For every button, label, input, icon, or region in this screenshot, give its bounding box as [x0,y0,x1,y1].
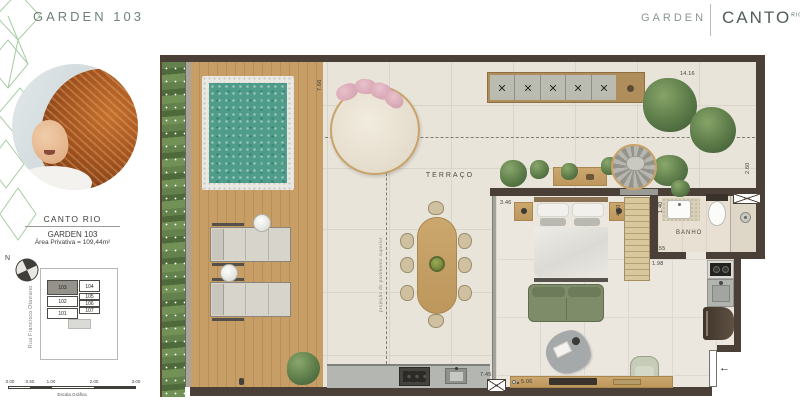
bath-sink [667,200,691,219]
brand-logo: CANTORIO [722,8,800,28]
shower-head-icon [740,212,751,223]
brand-logo-text: CANTO [722,8,791,27]
wall-bath-bottom-a [650,252,686,259]
gourmet-sink [445,368,467,384]
sun-lounger [210,227,291,262]
bed-pillow [537,203,569,217]
scale-seg [94,387,135,388]
indoor-floor-living [496,259,734,387]
projection-note: projeção do pavimento superior [378,232,383,312]
sofa-back [532,287,565,297]
bath-sink-faucet [678,203,681,206]
table-centerpiece [429,256,445,272]
wall-kitchen-right [734,259,741,347]
header-divider [710,4,711,36]
wall-right [756,55,765,259]
scale-caption: Escala Gráfica [8,392,136,397]
dining-chair [458,257,472,273]
coffee-table-cup [571,336,580,345]
scale-tick: 0.50 [26,379,35,384]
keyplan-unit-101: 101 [47,308,78,319]
toilet-bowl [708,201,726,226]
bed-foot-bench [534,278,608,282]
bench-cushion [592,75,616,100]
terrace-bench [487,72,645,103]
keyplan-unit-104: 104 [79,280,100,292]
kitchen-faucet [719,281,723,285]
scale-tick: 3.00 [132,379,141,384]
toilet-tank [706,194,728,201]
bed-duvet [534,227,608,277]
dining-chair [458,233,472,249]
entry-door [709,350,717,387]
keyplan-unit-107: 107 [79,307,100,314]
sink-basin [450,372,463,381]
dim-bedroom-right: 4.70 [616,198,622,216]
dining-chair [400,257,414,273]
keyplan-unit-102: 102 [47,296,78,307]
burner [713,266,720,273]
wall-bottom [190,387,712,396]
bathroom-label: BANHO [676,230,702,236]
keyplan-core [68,319,91,329]
bed-pillow [572,203,604,217]
dining-chair [428,201,444,215]
north-label: N [5,255,10,262]
dim-living-height: 7.45 [480,372,492,378]
wall-entry-stub [717,345,741,352]
gourmet-cooktop [399,367,430,386]
photo-smile [44,150,55,155]
terrace-tree [690,107,736,153]
sideboard-tray [613,379,641,385]
sofa-back [568,287,601,297]
dim-kitchen-width: 1.98 [652,261,664,267]
shower-divider [730,196,731,252]
toilet [705,194,729,227]
wall-top [160,55,765,62]
bed-cushion [540,218,566,226]
sliding-door-bedroom [620,189,658,195]
sidebar-area-line: Área Privativa = 109,44m² [10,239,135,246]
dining-chair [400,233,414,249]
outlet-dot [517,382,519,384]
dim-terrace-width: 14.16 [680,71,695,77]
sidebar-unit-title: GARDEN 103 [25,230,120,239]
lounger-seam [268,229,269,260]
deck-faucet [239,378,244,385]
street-label: Rua Francisco Otaviano [28,282,34,348]
terrace-tree [643,78,697,132]
console-decor [586,174,594,180]
glass-facade [492,196,496,387]
kitchen-sink-counter [707,279,734,307]
window-icon [487,379,506,392]
bench-cushion [490,75,515,100]
bath-corner-plant [671,180,690,197]
fridge-handle [706,311,708,336]
deck-side-table [220,264,238,282]
nightstand [514,202,533,221]
entry-arrow: ← [719,362,730,374]
dim-living-width: 5.06 [521,379,533,385]
sun-lounger [210,282,291,317]
pool [209,83,287,183]
dim-bath-width: 1.40 [658,197,664,213]
shower-floor [731,196,756,252]
coffee-table-book [553,341,572,358]
dim-terrace-depth: 2.60 [745,156,751,174]
hanging-chair-pillow [626,156,645,171]
brand-logo-sup: RIO [791,12,800,18]
closet-stairs [624,197,650,281]
keyplan-unit-105: 105 [79,293,100,300]
lounger-frame-bar [212,223,244,226]
nightstand-lamp [521,208,527,214]
kitchen-cooktop [707,260,734,279]
planter-strip [160,62,185,397]
keyplan-unit-103: 103 [47,280,78,295]
kitchen-sink-basin [712,285,730,302]
lifestyle-photo [12,64,138,190]
scale-bar-rule [8,386,136,389]
sofa-seat-seam [566,298,567,320]
dim-bath-depth: 2.55 [654,246,666,252]
fridge [703,307,734,340]
console-plant [561,163,578,180]
lounger-seam [245,229,246,260]
bench-cushion [541,75,566,100]
bench-side-table-bowl [627,85,634,92]
lounger-head [212,284,224,315]
scale-bar: 0.00 0.50 1.00 2.00 3.00 Escala Gráfica [8,379,138,401]
dining-chair [428,314,444,328]
dim-pool-height: 7.66 [317,73,323,91]
dim-bedroom-left: 3.46 [500,200,512,206]
wall-bath-bottom-b [706,252,765,259]
bed [534,197,608,283]
lounger-frame-bar [212,318,244,321]
lounger-head [212,229,224,260]
header-section-label: GARDEN [641,12,706,24]
burner [722,266,729,273]
bed-cushion [574,218,600,226]
tv [549,378,597,385]
keyplan-unit-106: 106 [79,300,100,307]
dining-chair [400,285,414,301]
bench-cushion [566,75,591,100]
scale-seg [30,387,52,388]
outlet-dots [512,380,520,385]
lounger-seam [245,284,246,315]
sidebar-brand-title: CANTO RIO [25,214,120,224]
window-icon [733,193,761,204]
bench-cushion [515,75,540,100]
shower-head-center [744,216,747,219]
deck-side-table [253,214,271,232]
sidebar-rule [25,226,120,227]
sofa [528,284,604,322]
cooktop-grate [403,371,426,382]
scale-tick: 0.00 [6,379,15,384]
bed-headboard [534,197,608,202]
tv-sideboard [510,376,673,388]
lounger-seam [268,284,269,315]
bench-cushions [490,75,616,100]
scale-tick: 1.00 [47,379,56,384]
page-title: GARDEN 103 [33,9,144,24]
sink-faucet [455,367,458,370]
dining-chair [458,285,472,301]
outlet-dot [512,380,516,384]
cooktop-panel [710,263,731,276]
scale-tick: 2.00 [90,379,99,384]
hanging-chair [611,144,657,190]
terrace-label: TERRAÇO [413,172,487,179]
